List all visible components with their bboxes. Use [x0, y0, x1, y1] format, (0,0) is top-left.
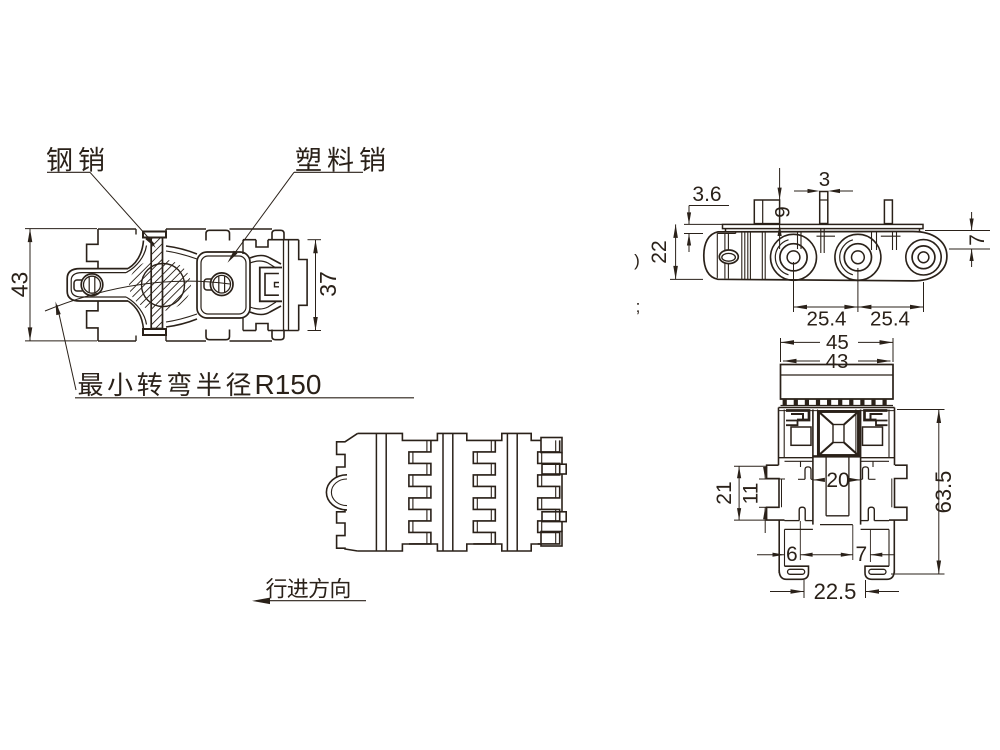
svg-text:21: 21	[713, 481, 736, 504]
svg-text:6: 6	[786, 543, 798, 566]
svg-text:11: 11	[740, 483, 763, 505]
svg-text:22.5: 22.5	[814, 579, 857, 604]
svg-text:63.5: 63.5	[931, 471, 956, 514]
svg-text:43: 43	[826, 350, 849, 373]
svg-text:R150: R150	[255, 369, 322, 400]
svg-text:3.6: 3.6	[692, 183, 721, 206]
svg-text:25.4: 25.4	[870, 308, 910, 331]
svg-text:7: 7	[856, 543, 868, 566]
svg-text:22: 22	[648, 240, 671, 263]
svg-text:7: 7	[966, 234, 989, 246]
svg-text:9: 9	[772, 206, 795, 218]
svg-text:25.4: 25.4	[807, 308, 847, 331]
svg-text:43: 43	[7, 272, 33, 298]
svg-text:20: 20	[826, 469, 849, 492]
svg-text:;: ;	[636, 297, 641, 316]
svg-text:37: 37	[315, 271, 341, 297]
svg-text:3: 3	[819, 168, 830, 191]
svg-text:): )	[634, 251, 640, 270]
